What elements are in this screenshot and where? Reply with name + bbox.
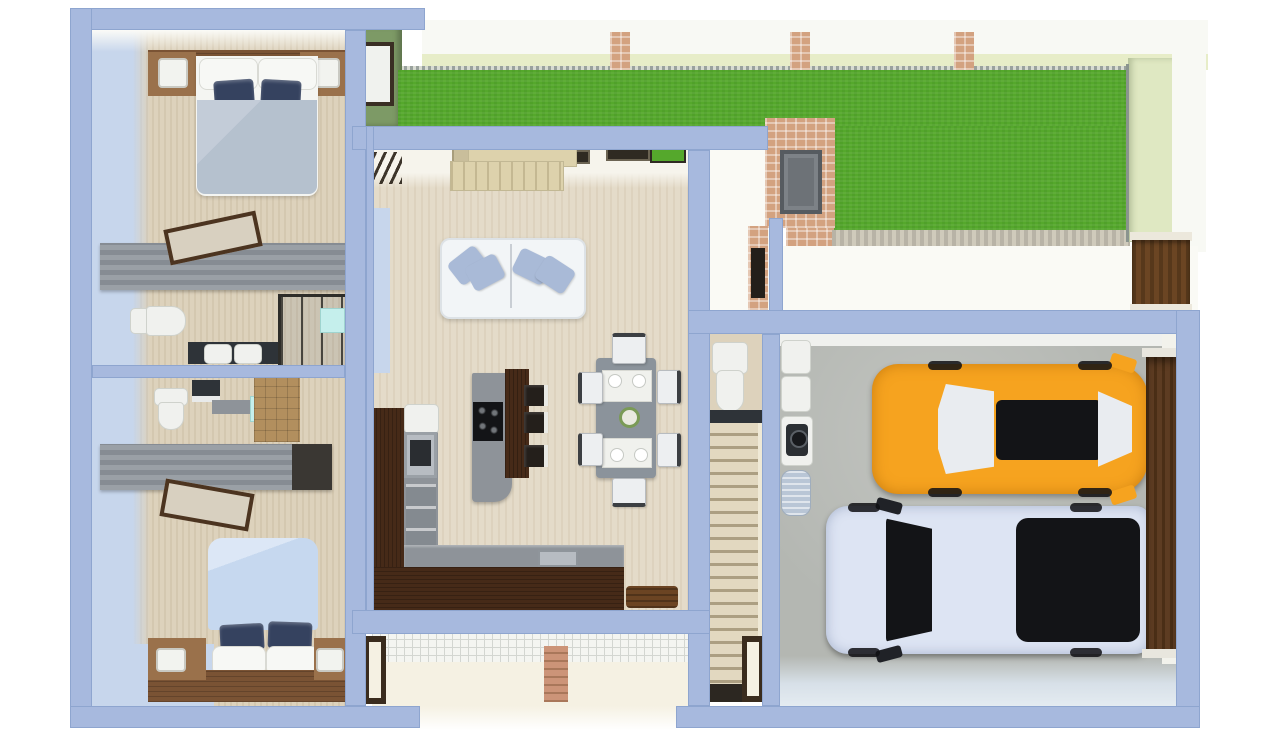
lawn-right	[786, 126, 1128, 238]
outer-wall-left	[70, 8, 92, 728]
dining-chair-south	[612, 478, 646, 507]
white-pickup-truck	[826, 506, 1150, 654]
truck-wheel	[1070, 648, 1102, 657]
bath1-toilet-bowl	[146, 306, 186, 336]
truck-windshield	[886, 516, 932, 644]
top-wall-inner-face	[92, 30, 345, 52]
truck-wheel	[1070, 503, 1102, 512]
dining-chair-east-1	[657, 370, 681, 404]
bed2-lamp-left	[156, 648, 186, 672]
chimney-connector-wall	[769, 218, 783, 314]
suv-wheel	[928, 488, 962, 497]
porch-tile-band	[372, 634, 688, 664]
yard-fence-right-face	[1128, 58, 1174, 242]
bath1-sink-left	[204, 344, 232, 364]
chimney-flue	[780, 150, 822, 214]
suv-wheel	[1078, 488, 1112, 497]
suv-windshield	[1098, 388, 1132, 470]
bed1-lamp-left	[158, 58, 188, 88]
brick-fence-post	[610, 32, 630, 70]
powder-toilet-bowl	[716, 370, 744, 412]
porch-brick-path	[544, 646, 568, 702]
floor-plan-render	[0, 0, 1280, 736]
kitchen-bottom-wall	[352, 610, 710, 634]
suv-roof-panel	[996, 400, 1102, 460]
bar-stool	[524, 385, 548, 406]
living-left-wall-face	[372, 208, 390, 373]
suv-rear-glass	[938, 384, 994, 474]
garage-door	[1146, 356, 1178, 650]
outer-wall-bottom-right	[676, 706, 1200, 728]
bath2-cork-wall	[254, 378, 300, 442]
sofa-center-seam	[510, 244, 512, 308]
porch-floor	[372, 662, 688, 706]
refrigerator	[404, 404, 439, 434]
entry-walkway	[420, 706, 676, 730]
outer-wall-bottom-left	[70, 706, 420, 728]
truck-cargo-bed	[1016, 518, 1140, 642]
water-tank	[781, 470, 811, 516]
bed1-blanket	[197, 100, 317, 194]
bed2-lamp-right	[316, 648, 344, 672]
utility-cabinet-bottom	[781, 376, 811, 412]
brick-fence-post	[954, 32, 974, 70]
truck-wheel	[848, 503, 880, 512]
center-bowl	[619, 407, 640, 428]
bath1-glass-shelf	[320, 308, 345, 333]
outer-wall-top-left	[70, 8, 425, 30]
living-block-left-wall	[366, 126, 374, 634]
dining-chair-north	[612, 333, 646, 364]
bath2-toilet-bowl	[158, 402, 184, 430]
plate	[632, 374, 646, 388]
kitchen-base-cabinets	[372, 567, 624, 612]
bedroom2-wardrobe-dark-section	[292, 444, 332, 490]
fence-corner-seam	[1126, 64, 1129, 242]
living-block-top-wall	[352, 126, 768, 150]
powder-counter	[706, 410, 762, 423]
bar-stool	[524, 445, 548, 467]
yard-fence-top	[422, 20, 1208, 58]
utility-cabinet-top	[781, 340, 811, 374]
dining-chair-west-1	[578, 372, 603, 404]
bar-stool	[524, 412, 548, 433]
bathroom-divider-wall	[92, 365, 345, 378]
yard-fence-right-outer	[1172, 34, 1206, 252]
garage-right-wall	[1176, 310, 1200, 728]
plate	[608, 374, 622, 388]
garage-top-wall	[688, 310, 1198, 334]
garage-apron-floor	[780, 656, 1176, 706]
dining-chair-east-2	[657, 433, 681, 467]
garage-top-wall-face	[780, 334, 1176, 346]
door-mat	[626, 586, 678, 608]
truck-wheel	[848, 648, 880, 657]
living-window-left	[374, 152, 402, 184]
orange-suv	[872, 364, 1148, 494]
hallway-right-wall	[762, 334, 780, 706]
kitchen-sink	[538, 550, 578, 567]
hall-door-frame-inner	[747, 642, 759, 696]
sideboard-lower	[450, 161, 564, 191]
bed2-blanket	[208, 538, 318, 630]
washer-drum	[790, 430, 808, 448]
dining-chair-west-2	[578, 433, 603, 466]
oven-window	[410, 440, 431, 466]
lawn-upper	[398, 70, 1128, 126]
brick-fence-post	[790, 32, 810, 70]
plate	[610, 448, 624, 462]
plate	[634, 448, 648, 462]
yard-left-window	[362, 42, 394, 106]
kitchen-drawers	[406, 484, 436, 550]
bath1-shower-enclosure	[278, 294, 351, 372]
bath1-sink-right	[234, 344, 262, 364]
suv-wheel	[928, 361, 962, 370]
planter-brick-trim	[786, 226, 834, 248]
firebox-opening	[751, 248, 765, 298]
bath2-vanity	[192, 380, 220, 402]
suv-wheel	[1078, 361, 1112, 370]
porch-door-frame-left-inner	[369, 642, 381, 698]
cooktop	[473, 402, 503, 441]
kitchen-bottom-counter	[404, 545, 624, 569]
wooden-gate	[1132, 240, 1190, 306]
